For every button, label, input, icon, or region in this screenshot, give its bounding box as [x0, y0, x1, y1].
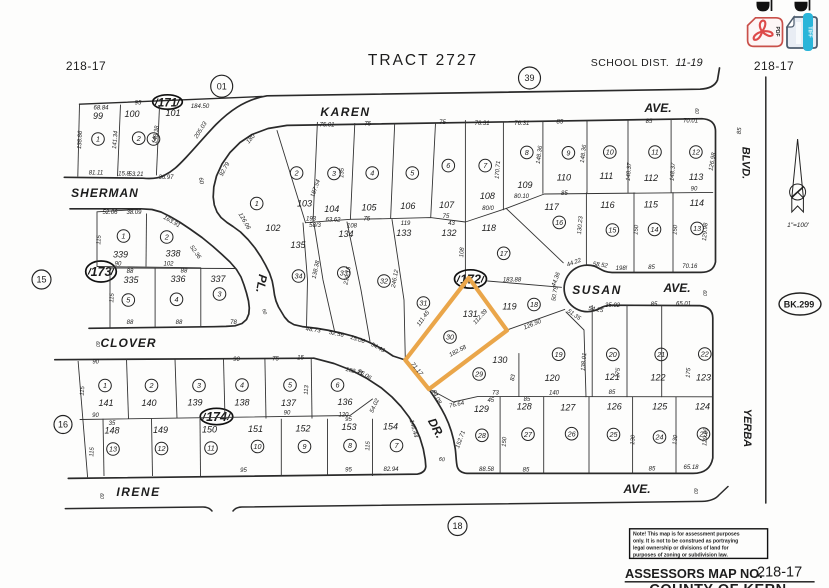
svg-text:81.11: 81.11 [89, 171, 104, 177]
svg-text:65.01: 65.01 [676, 302, 691, 308]
svg-text:152: 152 [295, 424, 310, 434]
svg-text:154: 154 [383, 422, 398, 432]
svg-text:115: 115 [109, 292, 116, 303]
svg-text:134: 134 [338, 229, 353, 239]
svg-text:78: 78 [230, 320, 237, 326]
svg-text:112: 112 [644, 173, 658, 183]
svg-text:60: 60 [94, 341, 100, 347]
svg-text:88: 88 [127, 269, 134, 275]
svg-text:138.86: 138.86 [77, 130, 84, 149]
svg-text:139: 139 [187, 398, 202, 408]
svg-text:95: 95 [345, 468, 352, 474]
svg-text:218-17: 218-17 [754, 59, 794, 73]
svg-text:25: 25 [609, 430, 619, 439]
svg-text:90: 90 [92, 360, 99, 366]
svg-text:95: 95 [240, 468, 247, 474]
svg-text:1"=100': 1"=100' [787, 222, 810, 229]
svg-text:legal ownership or divisions o: legal ownership or divisions of land for [633, 546, 729, 552]
svg-text:26: 26 [567, 429, 576, 438]
svg-text:108: 108 [347, 224, 358, 230]
svg-text:only. It is not to be construe: only. It is not to be construed as portr… [633, 539, 738, 545]
svg-text:85: 85 [737, 127, 744, 135]
svg-text:purposes of zoning or subdivis: purposes of zoning or subdivision law. [633, 553, 728, 559]
svg-text:73: 73 [492, 391, 499, 397]
svg-text:122: 122 [650, 373, 665, 383]
svg-text:175: 175 [615, 367, 622, 378]
svg-text:151: 151 [248, 424, 263, 434]
svg-text:95: 95 [135, 101, 142, 107]
svg-text:63.62: 63.62 [325, 218, 341, 224]
svg-text:19: 19 [555, 350, 563, 359]
svg-text:88: 88 [127, 320, 134, 326]
svg-text:76.31: 76.31 [514, 121, 529, 127]
svg-text:4: 4 [175, 295, 179, 304]
svg-text:15: 15 [608, 226, 617, 235]
svg-text:127: 127 [560, 402, 576, 412]
svg-text:TIFF: TIFF [807, 26, 813, 38]
svg-text:128: 128 [517, 402, 532, 412]
svg-text:68.84: 68.84 [93, 106, 109, 112]
svg-text:29: 29 [474, 370, 483, 379]
svg-text:150: 150 [502, 436, 509, 447]
svg-text:12: 12 [158, 444, 166, 453]
svg-text:116: 116 [600, 200, 614, 210]
svg-text:13: 13 [693, 224, 701, 233]
svg-text:36.97: 36.97 [158, 175, 174, 181]
svg-text:218-17: 218-17 [757, 565, 802, 581]
svg-text:123: 123 [696, 373, 711, 383]
svg-text:35.02: 35.02 [605, 303, 621, 309]
svg-text:111: 111 [600, 171, 614, 181]
svg-text:118: 118 [482, 223, 496, 233]
svg-text:53.21: 53.21 [128, 172, 143, 178]
svg-text:125: 125 [652, 402, 668, 412]
svg-text:1: 1 [96, 135, 100, 144]
svg-text:1: 1 [103, 381, 107, 390]
svg-text:115: 115 [89, 446, 96, 457]
svg-text:133: 133 [396, 228, 411, 238]
svg-text:15: 15 [297, 356, 304, 362]
svg-text:174: 174 [206, 410, 227, 424]
svg-text:AVE.: AVE. [622, 482, 650, 496]
svg-text:35: 35 [109, 421, 116, 427]
svg-text:20: 20 [608, 350, 617, 359]
svg-text:1: 1 [255, 199, 259, 208]
svg-text:70.16: 70.16 [682, 264, 698, 270]
svg-text:90: 90 [691, 186, 698, 192]
svg-text:85: 85 [561, 191, 568, 197]
svg-text:8: 8 [348, 441, 352, 450]
svg-text:148: 148 [104, 426, 119, 436]
svg-text:24: 24 [655, 433, 664, 442]
svg-text:65.18: 65.18 [683, 465, 699, 471]
svg-text:11: 11 [207, 444, 214, 453]
svg-text:IRENE: IRENE [116, 485, 160, 499]
svg-text:115: 115 [365, 440, 372, 451]
svg-text:193: 193 [306, 217, 317, 223]
svg-text:39: 39 [524, 73, 534, 83]
svg-text:31: 31 [419, 299, 427, 308]
svg-text:85: 85 [609, 390, 616, 396]
svg-text:45: 45 [487, 398, 494, 404]
svg-text:175: 175 [686, 367, 693, 378]
svg-text:88: 88 [181, 269, 188, 275]
svg-text:184.50: 184.50 [191, 104, 210, 110]
svg-text:AVE.: AVE. [643, 101, 671, 115]
svg-text:22: 22 [700, 350, 709, 359]
svg-text:38.09: 38.09 [126, 210, 142, 216]
svg-text:85: 85 [646, 119, 653, 125]
svg-text:135: 135 [290, 240, 306, 250]
svg-text:60: 60 [701, 290, 707, 296]
svg-text:101: 101 [165, 108, 180, 118]
svg-text:10: 10 [254, 442, 262, 451]
svg-text:129: 129 [474, 404, 489, 414]
svg-text:110: 110 [557, 173, 571, 183]
svg-text:85: 85 [523, 468, 530, 474]
svg-text:124: 124 [695, 402, 710, 412]
svg-text:140: 140 [141, 398, 156, 408]
svg-text:4: 4 [370, 169, 374, 178]
svg-text:114: 114 [690, 198, 704, 208]
svg-text:2: 2 [136, 134, 141, 143]
svg-text:21: 21 [656, 350, 665, 359]
svg-text:119: 119 [502, 302, 516, 312]
svg-text:126: 126 [607, 402, 622, 412]
svg-text:14: 14 [651, 225, 659, 234]
svg-text:52.06: 52.06 [102, 210, 118, 216]
svg-text:9: 9 [566, 148, 570, 157]
svg-text:CLOVER: CLOVER [100, 336, 156, 350]
svg-text:106: 106 [400, 201, 415, 211]
svg-text:6: 6 [336, 381, 340, 390]
svg-text:141: 141 [98, 398, 113, 408]
svg-text:32: 32 [380, 277, 388, 286]
svg-text:130: 130 [492, 355, 507, 365]
svg-text:88.58: 88.58 [479, 467, 495, 473]
svg-text:3: 3 [332, 169, 336, 178]
svg-text:107: 107 [439, 200, 455, 210]
svg-text:153: 153 [341, 422, 356, 432]
svg-text:85: 85 [557, 119, 564, 125]
svg-text:108: 108 [459, 247, 466, 258]
svg-text:3: 3 [197, 381, 201, 390]
svg-text:9: 9 [303, 442, 307, 451]
svg-text:2: 2 [164, 233, 169, 242]
svg-text:104: 104 [324, 204, 339, 214]
svg-text:80.10: 80.10 [514, 194, 530, 200]
svg-text:90: 90 [284, 411, 291, 417]
svg-text:76.31: 76.31 [475, 121, 490, 127]
svg-text:338: 338 [165, 249, 180, 259]
svg-text:11-19: 11-19 [675, 57, 702, 69]
svg-text:SCHOOL DIST.: SCHOOL DIST. [591, 57, 670, 69]
svg-text:10: 10 [606, 148, 614, 157]
svg-text:75: 75 [443, 214, 450, 220]
svg-text:103: 103 [297, 199, 312, 209]
svg-text:102: 102 [163, 261, 174, 267]
svg-text:136: 136 [337, 397, 352, 407]
svg-text:2: 2 [149, 381, 154, 390]
svg-text:8: 8 [525, 148, 529, 157]
svg-text:13: 13 [109, 445, 117, 454]
svg-text:KAREN: KAREN [320, 105, 370, 119]
svg-text:335: 335 [123, 275, 139, 285]
svg-text:137: 137 [281, 398, 297, 408]
svg-text:339: 339 [113, 250, 128, 260]
svg-text:70.01: 70.01 [683, 119, 698, 125]
svg-text:75: 75 [364, 121, 371, 127]
svg-text:218-17: 218-17 [66, 59, 106, 73]
svg-text:140: 140 [549, 391, 560, 397]
svg-text:TRACT 2727: TRACT 2727 [368, 52, 478, 69]
svg-text:90: 90 [92, 413, 99, 419]
svg-text:75: 75 [439, 120, 446, 126]
svg-text:16: 16 [555, 218, 563, 227]
svg-text:183.88: 183.88 [503, 278, 522, 284]
svg-text:30: 30 [446, 333, 454, 342]
svg-text:85: 85 [651, 302, 658, 308]
svg-text:149: 149 [153, 425, 168, 435]
svg-text:6: 6 [446, 161, 450, 170]
svg-text:75.01: 75.01 [319, 122, 334, 128]
svg-text:AVE.: AVE. [662, 281, 690, 295]
svg-text:138: 138 [234, 398, 249, 408]
svg-text:34: 34 [295, 272, 303, 281]
svg-text:PDF: PDF [774, 27, 780, 37]
svg-text:105: 105 [361, 203, 377, 213]
svg-text:115: 115 [80, 385, 87, 396]
svg-text:113: 113 [304, 384, 311, 395]
svg-text:95: 95 [345, 417, 352, 423]
svg-text:BLVD.: BLVD. [740, 147, 752, 179]
svg-text:SHERMAN: SHERMAN [71, 186, 139, 200]
svg-text:85: 85 [649, 467, 656, 473]
svg-text:90: 90 [115, 261, 122, 267]
svg-text:150: 150 [672, 224, 679, 235]
svg-text:198!: 198! [616, 266, 628, 272]
svg-text:60: 60 [692, 488, 698, 494]
svg-text:YERBA: YERBA [741, 409, 753, 448]
svg-text:115: 115 [96, 234, 103, 245]
svg-text:Note! This map is for assessme: Note! This map is for assessment purpose… [633, 532, 740, 538]
svg-text:4: 4 [240, 381, 244, 390]
svg-text:ASSESSORS MAP NO.: ASSESSORS MAP NO. [625, 566, 763, 581]
svg-text:119: 119 [401, 221, 411, 227]
svg-text:16: 16 [58, 420, 68, 430]
svg-text:337: 337 [210, 274, 226, 284]
svg-text:28: 28 [477, 431, 486, 440]
svg-text:113: 113 [689, 172, 703, 182]
svg-text:43: 43 [448, 221, 455, 227]
svg-text:60: 60 [693, 108, 699, 114]
svg-text:80/0: 80/0 [482, 206, 494, 212]
svg-text:132: 132 [441, 228, 456, 238]
svg-text:75: 75 [272, 357, 279, 363]
svg-text:115: 115 [644, 200, 659, 210]
svg-text:85: 85 [524, 397, 531, 403]
svg-text:17: 17 [500, 249, 509, 258]
svg-text:102: 102 [265, 223, 280, 233]
svg-text:01: 01 [217, 81, 227, 91]
svg-text:117: 117 [545, 202, 560, 212]
svg-text:15: 15 [36, 275, 46, 285]
svg-text:82.94: 82.94 [383, 467, 399, 473]
svg-text:150: 150 [633, 224, 640, 235]
svg-text:1: 1 [122, 232, 126, 241]
svg-text:60: 60 [98, 493, 104, 499]
svg-text:75: 75 [363, 217, 370, 223]
svg-text:109: 109 [517, 180, 532, 190]
svg-text:COUNTY OF KERN: COUNTY OF KERN [649, 582, 786, 588]
svg-text:88: 88 [176, 320, 183, 326]
svg-text:130: 130 [672, 434, 679, 445]
svg-text:BK.299: BK.299 [784, 300, 815, 310]
svg-text:130: 130 [630, 434, 637, 445]
svg-text:85: 85 [648, 265, 655, 271]
svg-text:135: 135 [339, 167, 346, 178]
svg-text:120: 120 [545, 373, 560, 383]
svg-text:18: 18 [530, 300, 538, 309]
svg-text:90: 90 [233, 357, 240, 363]
svg-text:SUSAN: SUSAN [572, 283, 622, 297]
svg-text:99: 99 [93, 111, 103, 121]
svg-text:2: 2 [294, 169, 299, 178]
svg-text:336: 336 [170, 274, 185, 284]
svg-text:18: 18 [452, 521, 462, 531]
svg-text:58/3: 58/3 [309, 223, 321, 229]
svg-text:150: 150 [202, 425, 217, 435]
svg-text:12: 12 [692, 148, 700, 157]
svg-text:100: 100 [124, 109, 139, 119]
svg-text:11: 11 [651, 148, 658, 157]
svg-text:108: 108 [480, 191, 495, 201]
svg-text:3: 3 [218, 290, 222, 299]
svg-text:27: 27 [523, 430, 533, 439]
